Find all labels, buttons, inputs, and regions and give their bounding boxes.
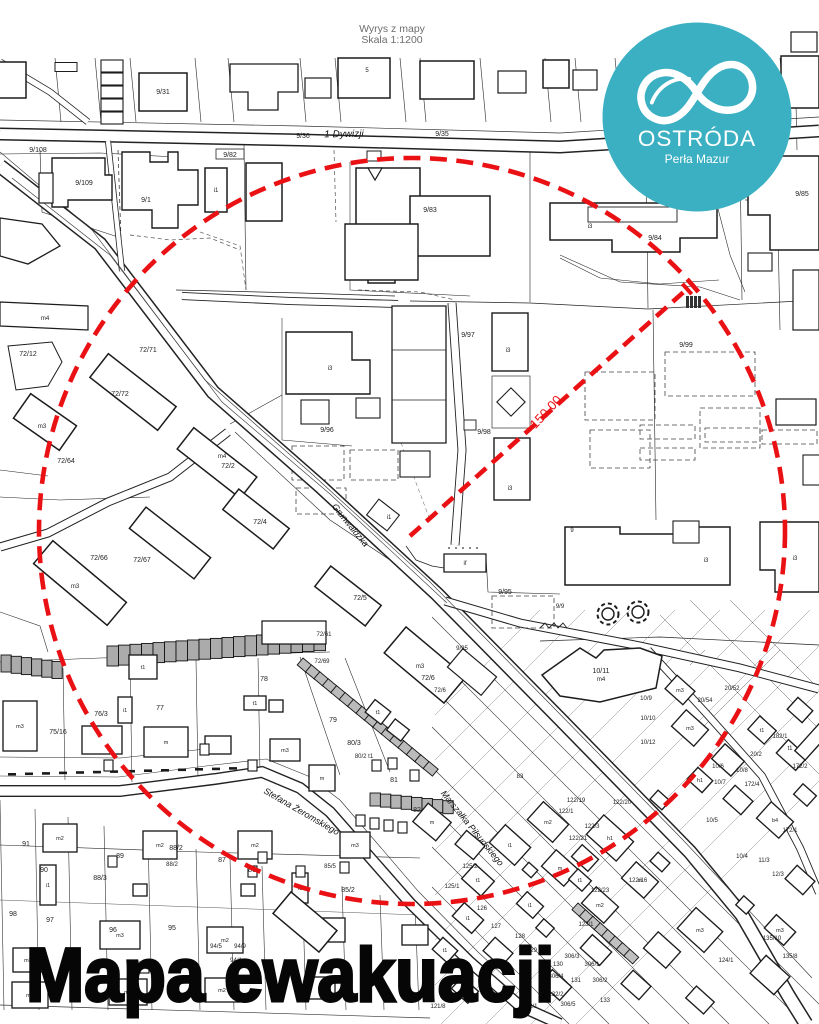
svg-text:i3: i3 bbox=[506, 348, 511, 354]
svg-text:87: 87 bbox=[218, 857, 226, 864]
svg-text:130: 130 bbox=[553, 962, 564, 968]
svg-text:124/1: 124/1 bbox=[718, 958, 734, 964]
svg-text:m3: m3 bbox=[776, 928, 784, 934]
svg-text:t1: t1 bbox=[760, 728, 765, 734]
svg-text:75/16: 75/16 bbox=[49, 729, 67, 736]
svg-text:10/8: 10/8 bbox=[736, 768, 748, 774]
svg-text:172/4: 172/4 bbox=[744, 782, 760, 788]
svg-text:72/2: 72/2 bbox=[221, 463, 235, 470]
svg-text:85/2: 85/2 bbox=[341, 887, 355, 894]
svg-text:m2: m2 bbox=[596, 903, 604, 909]
svg-text:m3: m3 bbox=[696, 928, 704, 934]
svg-text:10/5: 10/5 bbox=[706, 818, 718, 824]
svg-text:133: 133 bbox=[600, 998, 611, 1004]
svg-text:i3: i3 bbox=[588, 224, 593, 230]
svg-text:9/97: 9/97 bbox=[461, 332, 475, 339]
svg-text:11/3: 11/3 bbox=[758, 858, 770, 864]
svg-text:9/9: 9/9 bbox=[556, 604, 565, 610]
svg-text:9/98: 9/98 bbox=[477, 429, 491, 436]
svg-text:122/21: 122/21 bbox=[569, 836, 588, 842]
svg-text:90: 90 bbox=[40, 867, 48, 874]
svg-text:9/95: 9/95 bbox=[498, 589, 512, 596]
svg-text:306/5: 306/5 bbox=[560, 1002, 576, 1008]
svg-text:m3: m3 bbox=[281, 748, 289, 754]
svg-text:9/109: 9/109 bbox=[75, 180, 93, 187]
svg-text:182/1: 182/1 bbox=[772, 734, 788, 740]
svg-text:i1: i1 bbox=[46, 883, 50, 889]
svg-text:76/3: 76/3 bbox=[94, 711, 108, 718]
svg-text:135/10: 135/10 bbox=[763, 936, 782, 942]
svg-text:306/3: 306/3 bbox=[564, 954, 580, 960]
svg-text:9/95: 9/95 bbox=[456, 646, 468, 652]
svg-text:i1: i1 bbox=[466, 916, 470, 922]
svg-text:i3: i3 bbox=[704, 558, 709, 564]
svg-text:t1: t1 bbox=[787, 746, 793, 752]
svg-text:Mapa ewakuacji: Mapa ewakuacji bbox=[26, 933, 554, 1017]
svg-text:78: 78 bbox=[260, 676, 268, 683]
svg-text:t1: t1 bbox=[141, 665, 146, 671]
svg-text:123/1: 123/1 bbox=[578, 922, 594, 928]
svg-text:72/4: 72/4 bbox=[253, 519, 267, 526]
svg-text:m2: m2 bbox=[251, 843, 259, 849]
svg-text:9/85: 9/85 bbox=[795, 191, 809, 198]
svg-text:83: 83 bbox=[517, 774, 524, 780]
svg-text:t1: t1 bbox=[578, 878, 583, 884]
svg-text:72/64: 72/64 bbox=[57, 458, 75, 465]
svg-text:172/2: 172/2 bbox=[792, 764, 808, 770]
svg-text:m3: m3 bbox=[351, 843, 359, 849]
svg-text:10/10: 10/10 bbox=[640, 716, 656, 722]
svg-text:9/35: 9/35 bbox=[435, 131, 449, 138]
svg-text:9/31: 9/31 bbox=[156, 89, 170, 96]
svg-text:12/3: 12/3 bbox=[772, 872, 784, 878]
svg-text:81: 81 bbox=[390, 777, 398, 784]
svg-text:72/12: 72/12 bbox=[19, 351, 37, 358]
svg-text:m2: m2 bbox=[544, 820, 552, 826]
svg-text:20/54: 20/54 bbox=[697, 698, 713, 704]
svg-text:i3: i3 bbox=[508, 486, 513, 492]
svg-text:9/84: 9/84 bbox=[648, 235, 662, 242]
svg-text:if: if bbox=[464, 561, 467, 567]
svg-text:i3: i3 bbox=[793, 556, 798, 562]
svg-text:m2: m2 bbox=[156, 843, 164, 849]
svg-text:88/2: 88/2 bbox=[166, 862, 178, 868]
svg-text:122/19: 122/19 bbox=[567, 798, 586, 804]
svg-text:10/6: 10/6 bbox=[712, 764, 724, 770]
svg-text:9/1: 9/1 bbox=[141, 197, 151, 204]
svg-text:10/4: 10/4 bbox=[736, 854, 748, 860]
svg-text:306/1: 306/1 bbox=[584, 962, 600, 968]
svg-text:80/3: 80/3 bbox=[347, 740, 361, 747]
svg-text:i1: i1 bbox=[508, 843, 512, 849]
svg-text:m: m bbox=[320, 776, 325, 782]
svg-text:m4: m4 bbox=[218, 454, 227, 460]
svg-text:97: 97 bbox=[46, 917, 54, 924]
svg-text:i3: i3 bbox=[328, 366, 333, 372]
svg-text:10/11: 10/11 bbox=[593, 668, 610, 675]
svg-text:131: 131 bbox=[571, 978, 582, 984]
svg-text:h1: h1 bbox=[697, 778, 703, 784]
svg-text:m3: m3 bbox=[676, 688, 684, 694]
svg-text:t1: t1 bbox=[376, 710, 381, 716]
svg-text:72/72: 72/72 bbox=[111, 391, 129, 398]
svg-text:i1: i1 bbox=[387, 515, 392, 521]
svg-text:b4: b4 bbox=[772, 818, 778, 824]
svg-text:t1: t1 bbox=[253, 701, 258, 707]
svg-text:88/2: 88/2 bbox=[169, 845, 183, 852]
svg-text:i1: i1 bbox=[528, 903, 532, 909]
svg-text:9/99: 9/99 bbox=[679, 342, 693, 349]
svg-text:95: 95 bbox=[168, 925, 176, 932]
svg-text:t1: t1 bbox=[476, 878, 481, 884]
svg-text:72/69: 72/69 bbox=[314, 659, 330, 665]
svg-text:72/71: 72/71 bbox=[139, 347, 157, 354]
svg-text:m3: m3 bbox=[38, 424, 47, 430]
svg-text:89: 89 bbox=[116, 853, 124, 860]
svg-text:72/6: 72/6 bbox=[421, 675, 435, 682]
svg-text:m3: m3 bbox=[686, 726, 694, 732]
svg-text:125/2: 125/2 bbox=[462, 864, 478, 870]
svg-text:20/2: 20/2 bbox=[750, 752, 762, 758]
svg-text:127: 127 bbox=[491, 924, 502, 930]
svg-text:79: 79 bbox=[329, 717, 337, 724]
svg-text:i1: i1 bbox=[123, 708, 127, 714]
svg-text:m3: m3 bbox=[71, 584, 80, 590]
svg-text:85/5: 85/5 bbox=[324, 864, 336, 870]
svg-text:306/2: 306/2 bbox=[592, 978, 608, 984]
svg-text:72/5: 72/5 bbox=[353, 595, 367, 602]
svg-text:m: m bbox=[164, 740, 169, 746]
svg-text:Perła Mazur: Perła Mazur bbox=[665, 152, 730, 166]
svg-text:Skala 1:1200: Skala 1:1200 bbox=[361, 34, 422, 46]
svg-text:m4: m4 bbox=[41, 316, 50, 322]
svg-text:72/6: 72/6 bbox=[434, 688, 446, 694]
svg-text:72/61: 72/61 bbox=[316, 632, 332, 638]
svg-text:72/67: 72/67 bbox=[133, 557, 151, 564]
svg-text:122/23: 122/23 bbox=[591, 888, 610, 894]
svg-text:1 Dywizji: 1 Dywizji bbox=[324, 129, 364, 141]
svg-text:OSTRÓDA: OSTRÓDA bbox=[638, 126, 756, 151]
svg-text:m: m bbox=[430, 820, 435, 826]
svg-text:77: 77 bbox=[156, 705, 164, 712]
svg-text:10/12: 10/12 bbox=[640, 740, 656, 746]
svg-text:122/16: 122/16 bbox=[629, 878, 648, 884]
svg-text:9/108: 9/108 bbox=[29, 147, 47, 154]
svg-text:20/52: 20/52 bbox=[724, 686, 740, 692]
svg-text:9/36: 9/36 bbox=[296, 133, 310, 140]
svg-text:9/96: 9/96 bbox=[320, 427, 334, 434]
svg-text:i1: i1 bbox=[214, 188, 219, 194]
svg-text:122/3: 122/3 bbox=[584, 824, 600, 830]
svg-text:88/3: 88/3 bbox=[93, 875, 107, 882]
svg-text:10/9: 10/9 bbox=[640, 696, 652, 702]
svg-text:m3: m3 bbox=[416, 664, 425, 670]
svg-text:h1: h1 bbox=[607, 836, 613, 842]
svg-text:10/7: 10/7 bbox=[714, 780, 726, 786]
svg-text:125/1: 125/1 bbox=[444, 884, 460, 890]
svg-text:126: 126 bbox=[477, 906, 488, 912]
svg-text:122/1: 122/1 bbox=[558, 809, 574, 815]
svg-text:9/82: 9/82 bbox=[223, 152, 237, 159]
svg-text:122/20: 122/20 bbox=[613, 800, 632, 806]
svg-text:72/66: 72/66 bbox=[90, 555, 108, 562]
svg-text:91: 91 bbox=[22, 841, 30, 848]
svg-text:135/8: 135/8 bbox=[782, 954, 798, 960]
svg-text:172/1: 172/1 bbox=[782, 828, 798, 834]
svg-text:98: 98 bbox=[9, 911, 17, 918]
svg-text:80/2 t1: 80/2 t1 bbox=[355, 754, 374, 760]
svg-text:9/83: 9/83 bbox=[423, 207, 437, 214]
svg-text:m3: m3 bbox=[16, 724, 24, 730]
svg-text:82: 82 bbox=[413, 807, 421, 814]
svg-text:m4: m4 bbox=[597, 677, 606, 683]
svg-text:m2: m2 bbox=[56, 836, 64, 842]
